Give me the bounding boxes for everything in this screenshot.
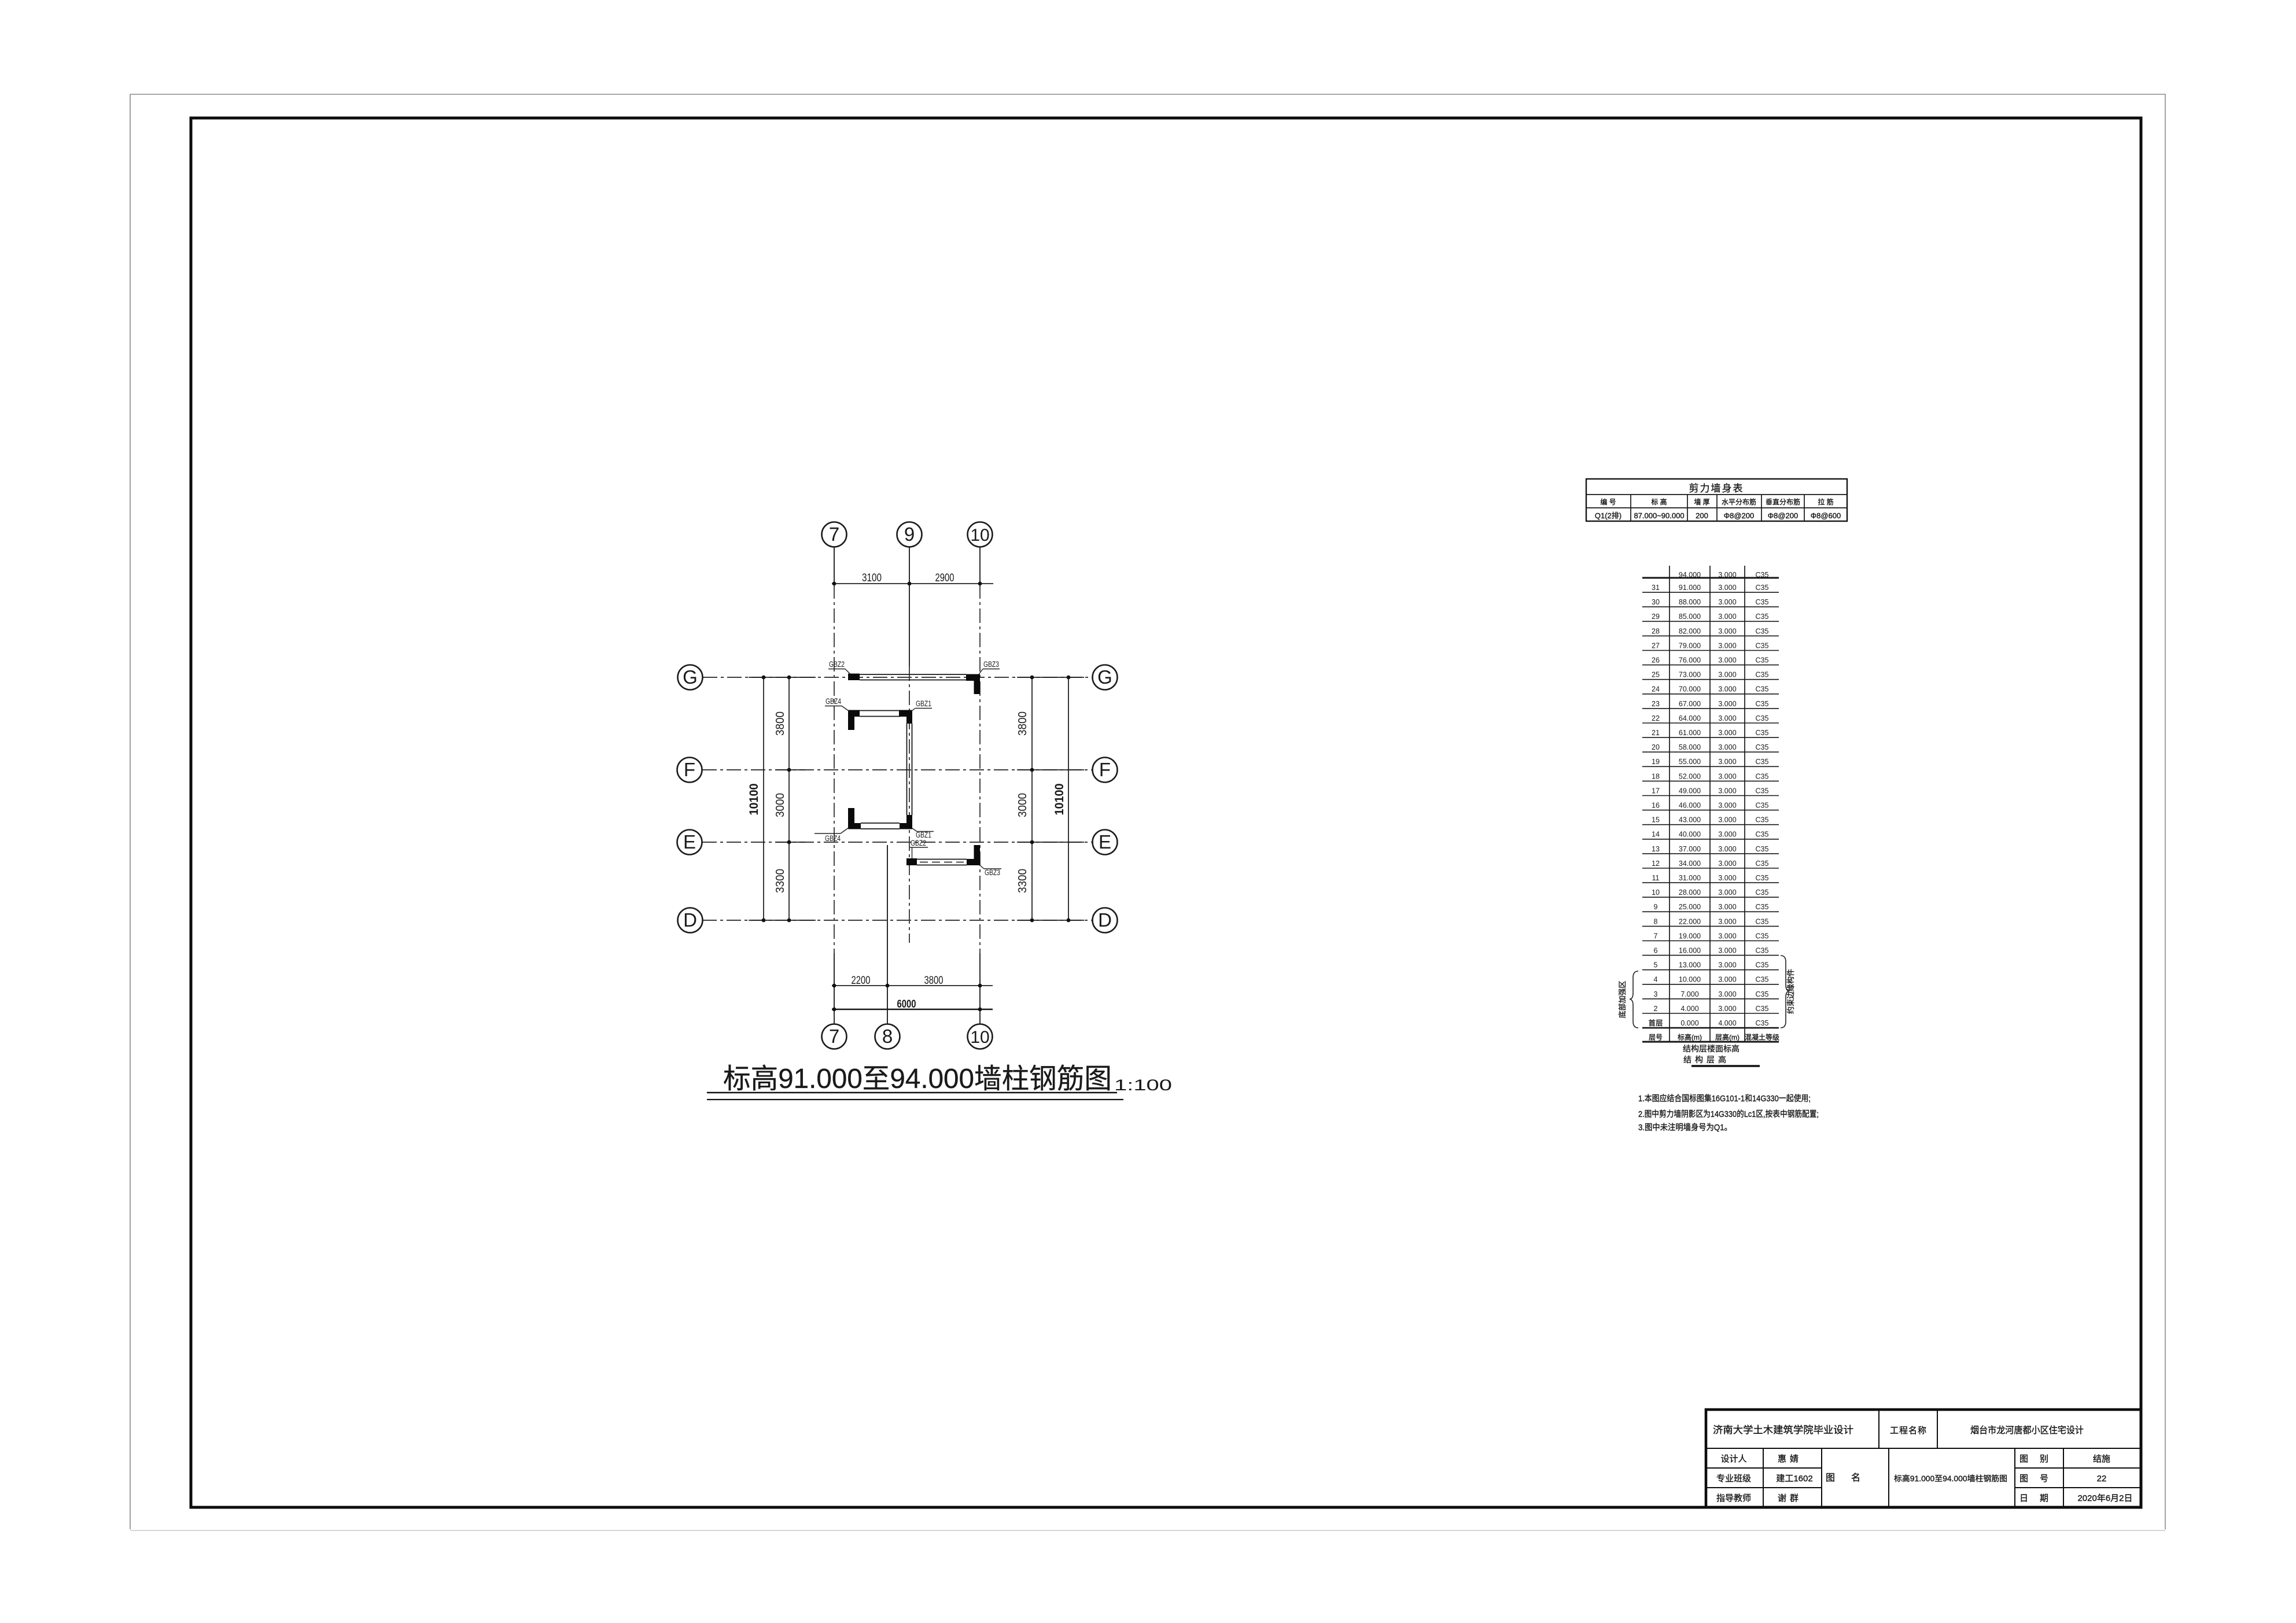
svg-text:10: 10: [1652, 888, 1660, 897]
svg-text:GBZ1: GBZ1: [916, 831, 931, 839]
svg-text:3.000: 3.000: [1718, 758, 1736, 766]
svg-text:3.000: 3.000: [1718, 816, 1736, 824]
svg-text:13: 13: [1652, 845, 1660, 853]
svg-text:建工1602: 建工1602: [1776, 1474, 1812, 1484]
svg-text:C35: C35: [1756, 613, 1769, 621]
svg-text:混凝土等级: 混凝土等级: [1745, 1033, 1779, 1042]
svg-text:28.000: 28.000: [1679, 888, 1701, 897]
svg-text:23: 23: [1652, 700, 1660, 708]
svg-text:3.图中未注明墙身号为Q1。: 3.图中未注明墙身号为Q1。: [1638, 1123, 1732, 1133]
svg-text:烟台市龙河唐都小区住宅设计: 烟台市龙河唐都小区住宅设计: [1970, 1425, 2084, 1436]
svg-text:GBZ3: GBZ3: [983, 660, 999, 669]
svg-text:12: 12: [1652, 860, 1660, 868]
svg-text:E: E: [1099, 831, 1111, 853]
svg-text:58.000: 58.000: [1679, 743, 1701, 751]
svg-text:91.000: 91.000: [1679, 584, 1701, 592]
svg-text:3.000: 3.000: [1718, 613, 1736, 621]
svg-text:C35: C35: [1756, 947, 1769, 955]
svg-text:工程名称: 工程名称: [1890, 1426, 1927, 1436]
svg-text:3.000: 3.000: [1718, 888, 1736, 897]
svg-text:图号: 图号: [2019, 1474, 2060, 1484]
svg-text:C35: C35: [1756, 571, 1769, 579]
svg-text:27: 27: [1652, 641, 1660, 650]
svg-text:3.000: 3.000: [1718, 1005, 1736, 1013]
svg-text:底部加强区: 底部加强区: [1618, 980, 1627, 1018]
svg-text:C35: C35: [1756, 598, 1769, 606]
svg-text:3800: 3800: [1016, 711, 1029, 736]
svg-text:C35: C35: [1756, 729, 1769, 737]
svg-text:7: 7: [829, 523, 839, 545]
svg-text:55.000: 55.000: [1679, 758, 1701, 766]
svg-text:拉 筋: 拉 筋: [1818, 497, 1833, 506]
svg-text:墙 厚: 墙 厚: [1694, 498, 1709, 506]
svg-text:61.000: 61.000: [1679, 729, 1701, 737]
svg-text:25.000: 25.000: [1679, 903, 1701, 911]
svg-text:C35: C35: [1756, 816, 1769, 824]
svg-text:22: 22: [1652, 714, 1660, 722]
svg-text:9: 9: [1654, 903, 1658, 911]
svg-text:C35: C35: [1756, 831, 1769, 839]
svg-text:21: 21: [1652, 729, 1660, 737]
svg-text:C35: C35: [1756, 685, 1769, 694]
svg-text:F: F: [1099, 759, 1111, 780]
svg-text:3.000: 3.000: [1718, 656, 1736, 665]
svg-text:3.000: 3.000: [1718, 831, 1736, 839]
svg-text:30: 30: [1652, 598, 1660, 606]
svg-text:3.000: 3.000: [1718, 976, 1736, 984]
svg-text:87.000~90.000: 87.000~90.000: [1634, 511, 1684, 520]
svg-text:7: 7: [829, 1026, 839, 1047]
svg-text:C35: C35: [1756, 627, 1769, 635]
svg-text:76.000: 76.000: [1679, 656, 1701, 665]
svg-text:3.000: 3.000: [1718, 961, 1736, 969]
svg-text:C35: C35: [1756, 932, 1769, 940]
svg-text:GBZ1: GBZ1: [916, 699, 931, 708]
svg-text:3.000: 3.000: [1718, 598, 1736, 606]
svg-text:3.000: 3.000: [1718, 685, 1736, 694]
svg-text:7.000: 7.000: [1680, 990, 1698, 998]
svg-text:37.000: 37.000: [1679, 845, 1701, 853]
svg-text:2020年6月2日: 2020年6月2日: [2077, 1493, 2132, 1503]
svg-text:3.000: 3.000: [1718, 571, 1736, 579]
svg-text:Q1(2排): Q1(2排): [1595, 511, 1621, 520]
svg-text:G: G: [683, 666, 698, 688]
svg-text:10100: 10100: [747, 784, 761, 816]
svg-text:10.000: 10.000: [1679, 976, 1701, 984]
svg-text:3.000: 3.000: [1718, 860, 1736, 868]
svg-text:3.000: 3.000: [1718, 802, 1736, 810]
svg-text:14: 14: [1652, 831, 1660, 839]
svg-text:2900: 2900: [935, 572, 954, 584]
svg-text:2: 2: [1654, 1005, 1658, 1013]
svg-text:C35: C35: [1756, 888, 1769, 897]
svg-text:31: 31: [1652, 584, 1660, 592]
svg-text:C35: C35: [1756, 874, 1769, 882]
svg-text:3.000: 3.000: [1718, 729, 1736, 737]
svg-text:标高91.000至94.000墙柱钢筋图: 标高91.000至94.000墙柱钢筋图: [723, 1064, 1112, 1094]
svg-text:C35: C35: [1756, 641, 1769, 650]
svg-text:3100: 3100: [862, 572, 882, 584]
svg-text:结构层高: 结构层高: [1683, 1055, 1730, 1064]
svg-text:D: D: [1098, 909, 1112, 931]
svg-text:17: 17: [1652, 787, 1660, 795]
svg-text:2200: 2200: [852, 975, 871, 987]
svg-text:结施: 结施: [2093, 1454, 2110, 1464]
svg-text:5: 5: [1654, 961, 1658, 969]
svg-text:24: 24: [1652, 685, 1660, 694]
svg-text:19: 19: [1652, 758, 1660, 766]
svg-text:C35: C35: [1756, 802, 1769, 810]
svg-text:64.000: 64.000: [1679, 714, 1701, 722]
svg-text:94.000: 94.000: [1679, 571, 1701, 579]
svg-text:设计人: 设计人: [1720, 1454, 1746, 1464]
svg-text:3.000: 3.000: [1718, 874, 1736, 882]
svg-text:C35: C35: [1756, 990, 1769, 998]
svg-text:3.000: 3.000: [1718, 947, 1736, 955]
svg-text:16: 16: [1652, 802, 1660, 810]
svg-text:10100: 10100: [1053, 784, 1066, 816]
svg-text:4.000: 4.000: [1718, 1019, 1736, 1027]
svg-text:3.000: 3.000: [1718, 917, 1736, 925]
svg-text:19.000: 19.000: [1679, 932, 1701, 940]
svg-text:专业班级: 专业班级: [1716, 1474, 1751, 1484]
svg-text:28: 28: [1652, 627, 1660, 635]
svg-text:C35: C35: [1756, 976, 1769, 984]
svg-text:层高(m): 层高(m): [1715, 1033, 1739, 1042]
svg-text:C35: C35: [1756, 1005, 1769, 1013]
svg-text:200: 200: [1696, 511, 1708, 520]
svg-text:约束边缘构件: 约束边缘构件: [1786, 969, 1795, 1014]
svg-text:C35: C35: [1756, 917, 1769, 925]
svg-text:C35: C35: [1756, 772, 1769, 780]
svg-text:GBZ4: GBZ4: [825, 697, 841, 706]
svg-text:C35: C35: [1756, 743, 1769, 751]
svg-text:15: 15: [1652, 816, 1660, 824]
svg-text:26: 26: [1652, 656, 1660, 665]
svg-text:3.000: 3.000: [1718, 743, 1736, 751]
svg-text:3.000: 3.000: [1718, 700, 1736, 708]
svg-text:8: 8: [1654, 917, 1658, 925]
svg-text:首层: 首层: [1648, 1019, 1663, 1027]
svg-text:3.000: 3.000: [1718, 787, 1736, 795]
svg-text:C35: C35: [1756, 758, 1769, 766]
svg-text:C35: C35: [1756, 656, 1769, 665]
svg-text:剪力墙身表: 剪力墙身表: [1689, 483, 1744, 494]
svg-text:6: 6: [1654, 947, 1658, 955]
svg-text:E: E: [683, 831, 696, 853]
svg-text:C35: C35: [1756, 860, 1769, 868]
svg-text:C35: C35: [1756, 1019, 1769, 1027]
svg-text:惠婧: 惠婧: [1778, 1454, 1802, 1464]
svg-text:34.000: 34.000: [1679, 860, 1701, 868]
svg-text:3000: 3000: [1016, 793, 1029, 817]
svg-text:3.000: 3.000: [1718, 641, 1736, 650]
svg-text:1.本图应结合国标图集16G101-1和14G330一起使用: 1.本图应结合国标图集16G101-1和14G330一起使用;: [1638, 1093, 1811, 1104]
svg-text:层号: 层号: [1649, 1034, 1663, 1042]
svg-text:3000: 3000: [774, 793, 787, 817]
svg-text:10: 10: [970, 526, 989, 545]
svg-text:4.000: 4.000: [1680, 1005, 1698, 1013]
svg-text:3800: 3800: [774, 711, 787, 736]
svg-text:D: D: [683, 909, 697, 931]
svg-text:C35: C35: [1756, 961, 1769, 969]
svg-text:3.000: 3.000: [1718, 932, 1736, 940]
svg-text:79.000: 79.000: [1679, 641, 1701, 650]
svg-text:3.000: 3.000: [1718, 714, 1736, 722]
svg-text:20: 20: [1652, 743, 1660, 751]
svg-text:40.000: 40.000: [1679, 831, 1701, 839]
svg-text:3800: 3800: [924, 975, 944, 987]
svg-text:3: 3: [1654, 990, 1658, 998]
svg-text:46.000: 46.000: [1679, 802, 1701, 810]
svg-text:67.000: 67.000: [1679, 700, 1701, 708]
svg-text:济南大学土木建筑学院毕业设计: 济南大学土木建筑学院毕业设计: [1713, 1425, 1853, 1436]
svg-text:10: 10: [970, 1028, 989, 1047]
svg-text:Φ8@600: Φ8@600: [1811, 511, 1841, 520]
svg-text:6000: 6000: [897, 998, 916, 1010]
svg-text:4: 4: [1654, 976, 1658, 984]
svg-text:0.000: 0.000: [1680, 1019, 1698, 1027]
svg-text:9: 9: [904, 523, 915, 545]
svg-text:GBZ3: GBZ3: [985, 868, 1000, 877]
svg-text:水平分布筋: 水平分布筋: [1722, 497, 1756, 506]
svg-text:3.000: 3.000: [1718, 671, 1736, 679]
svg-text:标 高: 标 高: [1651, 497, 1667, 506]
svg-text:85.000: 85.000: [1679, 613, 1701, 621]
svg-text:标高(m): 标高(m): [1678, 1033, 1702, 1042]
svg-text:垂直分布筋: 垂直分布筋: [1766, 497, 1800, 506]
svg-text:C35: C35: [1756, 845, 1769, 853]
svg-text:3.000: 3.000: [1718, 990, 1736, 998]
svg-text:25: 25: [1652, 671, 1660, 679]
svg-text:31.000: 31.000: [1679, 874, 1701, 882]
svg-text:C35: C35: [1756, 787, 1769, 795]
svg-text:29: 29: [1652, 613, 1660, 621]
svg-text:88.000: 88.000: [1679, 598, 1701, 606]
svg-text:G: G: [1097, 666, 1112, 688]
svg-text:C35: C35: [1756, 700, 1769, 708]
svg-text:13.000: 13.000: [1679, 961, 1701, 969]
svg-text:22.000: 22.000: [1679, 917, 1701, 925]
svg-text:图名: 图名: [1826, 1473, 1877, 1483]
svg-text:谢群: 谢群: [1778, 1493, 1802, 1503]
svg-text:GBZ2: GBZ2: [829, 660, 845, 669]
svg-text:C35: C35: [1756, 903, 1769, 911]
svg-text:3.000: 3.000: [1718, 584, 1736, 592]
svg-text:GBZ2: GBZ2: [911, 839, 926, 847]
svg-text:82.000: 82.000: [1679, 627, 1701, 635]
svg-text:1:100: 1:100: [1114, 1076, 1172, 1094]
svg-text:3300: 3300: [774, 869, 787, 893]
svg-text:11: 11: [1652, 874, 1660, 882]
svg-text:结构层楼面标高: 结构层楼面标高: [1683, 1044, 1739, 1053]
svg-text:22: 22: [2097, 1474, 2107, 1484]
svg-text:C35: C35: [1756, 714, 1769, 722]
svg-text:49.000: 49.000: [1679, 787, 1701, 795]
svg-text:52.000: 52.000: [1679, 772, 1701, 780]
svg-text:标高91.000至94.000墙柱钢筋图: 标高91.000至94.000墙柱钢筋图: [1894, 1474, 2007, 1483]
svg-text:指导教师: 指导教师: [1716, 1493, 1751, 1503]
svg-text:16.000: 16.000: [1679, 947, 1701, 955]
svg-text:C35: C35: [1756, 584, 1769, 592]
svg-text:18: 18: [1652, 772, 1660, 780]
svg-text:Φ8@200: Φ8@200: [1724, 511, 1755, 520]
svg-text:C35: C35: [1756, 671, 1769, 679]
svg-text:70.000: 70.000: [1679, 685, 1701, 694]
svg-text:编 号: 编 号: [1600, 497, 1616, 506]
svg-text:F: F: [684, 759, 695, 780]
svg-text:GBZ4: GBZ4: [825, 834, 841, 843]
svg-text:43.000: 43.000: [1679, 816, 1701, 824]
svg-text:73.000: 73.000: [1679, 671, 1701, 679]
svg-text:Φ8@200: Φ8@200: [1768, 511, 1799, 520]
svg-text:8: 8: [882, 1026, 893, 1047]
svg-text:图别: 图别: [2019, 1454, 2060, 1464]
svg-text:3.000: 3.000: [1718, 627, 1736, 635]
svg-text:7: 7: [1654, 932, 1658, 940]
svg-text:3300: 3300: [1016, 869, 1029, 893]
svg-text:3.000: 3.000: [1718, 903, 1736, 911]
svg-text:3.000: 3.000: [1718, 845, 1736, 853]
svg-text:3.000: 3.000: [1718, 772, 1736, 780]
svg-text:2.图中剪力墙阴影区为14G330的Lc1区,按表中钢筋配置: 2.图中剪力墙阴影区为14G330的Lc1区,按表中钢筋配置;: [1638, 1109, 1819, 1119]
svg-text:日期: 日期: [2019, 1493, 2060, 1503]
